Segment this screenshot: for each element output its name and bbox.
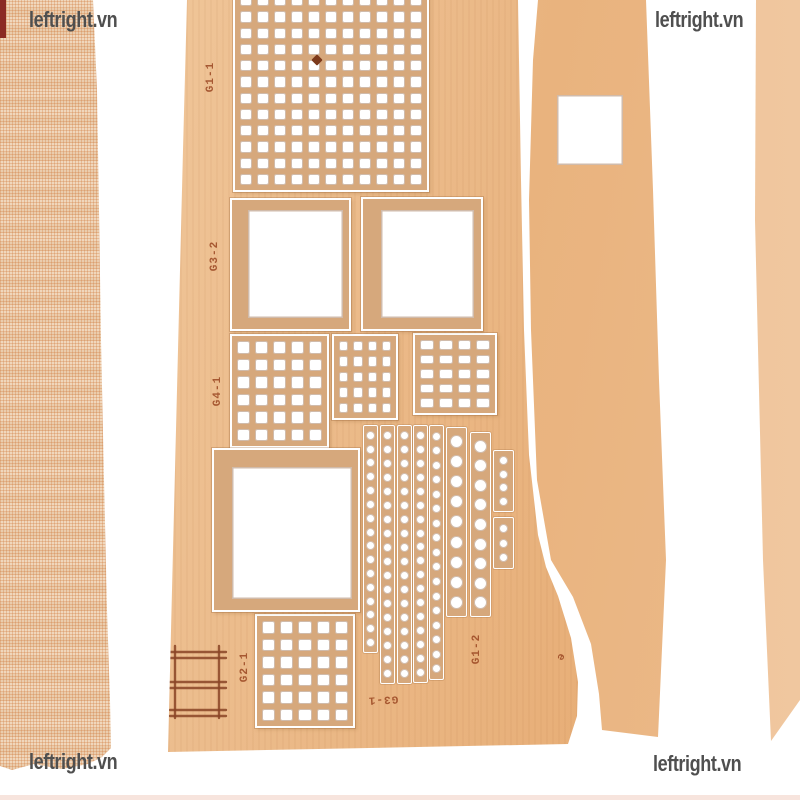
strip-hole bbox=[432, 446, 441, 455]
grating-hole bbox=[359, 93, 371, 104]
strip-hole bbox=[383, 669, 392, 678]
strip-hole bbox=[474, 538, 487, 551]
strip-hole bbox=[416, 473, 425, 482]
grating-hole bbox=[291, 141, 303, 152]
strip-hole bbox=[499, 497, 508, 506]
grating-hole bbox=[342, 125, 354, 136]
grating-hole bbox=[255, 429, 268, 442]
grating-hole bbox=[335, 709, 348, 722]
grating-hole bbox=[359, 109, 371, 120]
strip-hole bbox=[432, 548, 441, 557]
product-photo: G1-1G3-2G4-1G2-1G3-1G1-2e leftright.vn l… bbox=[0, 0, 800, 800]
grating-hole bbox=[274, 28, 286, 39]
grating-hole bbox=[376, 125, 388, 136]
grating-hole bbox=[335, 656, 348, 669]
engraved-label-g4-1: G4-1 bbox=[212, 376, 224, 406]
strip-hole bbox=[366, 445, 375, 454]
strip-hole bbox=[416, 515, 425, 524]
grating-hole bbox=[325, 125, 337, 136]
strip-hole bbox=[450, 455, 463, 468]
grating-hole bbox=[262, 691, 275, 704]
grating-hole bbox=[298, 656, 311, 669]
strip-hole bbox=[474, 596, 487, 609]
grating-hole bbox=[410, 76, 422, 87]
strip-hole bbox=[416, 431, 425, 440]
grating-hole bbox=[274, 76, 286, 87]
grating-hole bbox=[262, 709, 275, 722]
strip-hole bbox=[416, 445, 425, 454]
strip-hole bbox=[383, 557, 392, 566]
grating-hole bbox=[376, 28, 388, 39]
engraved-label-e: e bbox=[553, 651, 567, 663]
hole-strip-1 bbox=[363, 425, 378, 653]
grating-hole bbox=[255, 376, 268, 389]
strip-hole bbox=[450, 475, 463, 488]
grating-hole bbox=[291, 125, 303, 136]
grating-hole bbox=[262, 621, 275, 634]
strip-hole bbox=[366, 610, 375, 619]
grating-hole bbox=[353, 372, 362, 382]
grating-hole bbox=[308, 93, 320, 104]
grating-hole bbox=[291, 28, 303, 39]
grating-hole bbox=[240, 60, 252, 71]
main-parts-sheet: G1-1G3-2G4-1G2-1G3-1G1-2e bbox=[0, 0, 800, 800]
strip-hole bbox=[499, 539, 508, 548]
strip-hole bbox=[450, 435, 463, 448]
grating-hole bbox=[342, 44, 354, 55]
grating-hole bbox=[410, 93, 422, 104]
grating-hole bbox=[376, 109, 388, 120]
grating-hole bbox=[274, 109, 286, 120]
strip-hole bbox=[416, 626, 425, 635]
grating-hole bbox=[240, 125, 252, 136]
strip-hole bbox=[416, 487, 425, 496]
grating-hole bbox=[240, 0, 252, 6]
strip-hole bbox=[450, 576, 463, 589]
grating-hole bbox=[342, 60, 354, 71]
grating-hole bbox=[353, 387, 362, 397]
grating-hole bbox=[273, 394, 286, 407]
grating-hole bbox=[368, 403, 377, 413]
strip-hole bbox=[416, 556, 425, 565]
grating-hole bbox=[368, 372, 377, 382]
grating-hole bbox=[274, 11, 286, 22]
sheet-parts: G1-1G3-2G4-1G2-1G3-1G1-2e bbox=[0, 0, 800, 800]
grating-hole bbox=[439, 340, 453, 350]
strip-hole bbox=[366, 528, 375, 537]
grating-hole bbox=[291, 394, 304, 407]
strip-hole bbox=[416, 542, 425, 551]
grating-hole bbox=[255, 394, 268, 407]
strip-hole bbox=[432, 562, 441, 571]
strip-hole bbox=[383, 571, 392, 580]
grating-hole bbox=[308, 76, 320, 87]
grating-hole bbox=[257, 44, 269, 55]
grating-hole bbox=[393, 174, 405, 185]
strip-hole bbox=[474, 479, 487, 492]
strip-hole bbox=[416, 668, 425, 677]
grating-hole bbox=[382, 403, 391, 413]
grating-hole bbox=[308, 11, 320, 22]
grating-hole bbox=[393, 109, 405, 120]
grating-hole bbox=[393, 125, 405, 136]
grating-g2-1 bbox=[255, 614, 355, 728]
grating-hole bbox=[339, 387, 348, 397]
grating-hole bbox=[359, 60, 371, 71]
grating-hole bbox=[257, 174, 269, 185]
grating-hole bbox=[382, 387, 391, 397]
strip-hole bbox=[474, 498, 487, 511]
grating-hole bbox=[393, 60, 405, 71]
grating-hole bbox=[410, 109, 422, 120]
grating-hole bbox=[291, 93, 303, 104]
strip-hole bbox=[400, 543, 409, 552]
strip-hole bbox=[383, 641, 392, 650]
frame-large bbox=[212, 448, 360, 612]
grating-g4-1-a bbox=[230, 334, 329, 448]
bottom-edge-strip bbox=[0, 795, 800, 800]
strip-hole bbox=[400, 599, 409, 608]
grating-hole bbox=[273, 376, 286, 389]
strip-hole bbox=[432, 577, 441, 586]
grating-hole bbox=[255, 341, 268, 354]
grating-hole bbox=[393, 76, 405, 87]
grating-hole bbox=[393, 93, 405, 104]
strip-hole bbox=[400, 627, 409, 636]
grating-hole bbox=[376, 76, 388, 87]
grating-hole bbox=[325, 11, 337, 22]
strip-hole bbox=[400, 669, 409, 678]
strip-hole bbox=[474, 440, 487, 453]
engraved-label-g3-2: G3-2 bbox=[209, 241, 221, 271]
grating-hole bbox=[439, 355, 453, 365]
grating-hole bbox=[339, 356, 348, 366]
grating-hole bbox=[257, 125, 269, 136]
strip-hole bbox=[432, 490, 441, 499]
grating-hole bbox=[353, 341, 362, 351]
strip-hole bbox=[400, 431, 409, 440]
strip-hole bbox=[499, 483, 508, 492]
grating-hole bbox=[382, 356, 391, 366]
grating-hole bbox=[420, 369, 434, 379]
grating-hole bbox=[393, 28, 405, 39]
grating-hole bbox=[458, 398, 472, 408]
grating-hole bbox=[325, 0, 337, 6]
grating-hole bbox=[325, 93, 337, 104]
grating-hole bbox=[368, 356, 377, 366]
grating-hole bbox=[339, 341, 348, 351]
grating-hole bbox=[298, 621, 311, 634]
grating-hole bbox=[240, 174, 252, 185]
strip-hole bbox=[366, 486, 375, 495]
grating-hole bbox=[476, 398, 490, 408]
hole-strip-3 bbox=[397, 425, 412, 684]
grating-hole bbox=[291, 411, 304, 424]
grating-hole bbox=[291, 11, 303, 22]
strip-hole bbox=[416, 654, 425, 663]
grating-hole bbox=[410, 60, 422, 71]
strip-hole bbox=[400, 445, 409, 454]
grating-hole bbox=[342, 28, 354, 39]
grating-hole bbox=[376, 141, 388, 152]
grating-hole bbox=[439, 369, 453, 379]
grating-hole bbox=[393, 0, 405, 6]
grating-hole bbox=[237, 394, 250, 407]
strip-hole bbox=[474, 459, 487, 472]
grating-hole bbox=[274, 158, 286, 169]
grating-hole bbox=[376, 93, 388, 104]
grating-hole bbox=[376, 44, 388, 55]
grating-hole bbox=[257, 28, 269, 39]
strip-hole bbox=[450, 556, 463, 569]
strip-hole bbox=[400, 529, 409, 538]
hole-strip-7 bbox=[470, 432, 491, 617]
strip-hole bbox=[416, 640, 425, 649]
grating-hole bbox=[458, 369, 472, 379]
grating-hole bbox=[309, 341, 322, 354]
grating-hole bbox=[298, 691, 311, 704]
strip-hole bbox=[474, 557, 487, 570]
grating-hole bbox=[273, 429, 286, 442]
grating-hole bbox=[280, 639, 293, 652]
hole-strip-9 bbox=[493, 517, 514, 569]
strip-hole bbox=[366, 541, 375, 550]
grating-hole bbox=[420, 398, 434, 408]
grating-hole bbox=[342, 11, 354, 22]
grating-hole bbox=[339, 372, 348, 382]
strip-hole bbox=[383, 431, 392, 440]
grating-hole bbox=[298, 639, 311, 652]
frame-large-hole bbox=[232, 467, 352, 599]
grating-hole bbox=[273, 341, 286, 354]
grating-hole bbox=[291, 174, 303, 185]
grating-hole bbox=[308, 28, 320, 39]
strip-hole bbox=[432, 650, 441, 659]
grating-hole bbox=[291, 44, 303, 55]
strip-hole bbox=[499, 553, 508, 562]
grating-hole bbox=[308, 109, 320, 120]
strip-hole bbox=[432, 635, 441, 644]
grating-hole bbox=[257, 0, 269, 6]
grating-hole bbox=[342, 174, 354, 185]
grating-hole bbox=[309, 429, 322, 442]
grating-hole bbox=[335, 674, 348, 687]
watermark-bottom-right: leftright.vn bbox=[653, 751, 741, 777]
strip-hole bbox=[366, 597, 375, 606]
frame-g3-2-left bbox=[230, 198, 351, 331]
strip-hole bbox=[400, 515, 409, 524]
grating-hole bbox=[280, 674, 293, 687]
strip-hole bbox=[400, 459, 409, 468]
grating-hole bbox=[237, 341, 250, 354]
grating-hole bbox=[325, 174, 337, 185]
strip-hole bbox=[474, 577, 487, 590]
grating-hole bbox=[308, 0, 320, 6]
hole-strip-6 bbox=[446, 427, 467, 617]
grating-hole bbox=[353, 356, 362, 366]
strip-hole bbox=[366, 500, 375, 509]
strip-hole bbox=[474, 518, 487, 531]
grating-hole bbox=[257, 158, 269, 169]
grating-hole bbox=[257, 76, 269, 87]
engraved-label-g3-1: G3-1 bbox=[368, 692, 399, 706]
grating-hole bbox=[410, 141, 422, 152]
grating-hole bbox=[317, 709, 330, 722]
grating-hole bbox=[439, 398, 453, 408]
grating-hole bbox=[410, 11, 422, 22]
grating-hole bbox=[274, 93, 286, 104]
grating-hole bbox=[262, 639, 275, 652]
grating-hole bbox=[262, 656, 275, 669]
grating-hole bbox=[325, 60, 337, 71]
grating-hole bbox=[353, 403, 362, 413]
grating-hole bbox=[255, 359, 268, 372]
grating-hole bbox=[237, 359, 250, 372]
grating-hole bbox=[298, 674, 311, 687]
grating-hole bbox=[291, 0, 303, 6]
grating-hole bbox=[342, 93, 354, 104]
grating-hole bbox=[342, 158, 354, 169]
grating-hole bbox=[376, 158, 388, 169]
strip-hole bbox=[383, 543, 392, 552]
grating-hole bbox=[257, 141, 269, 152]
strip-hole bbox=[383, 585, 392, 594]
strip-hole bbox=[450, 536, 463, 549]
grating-hole bbox=[458, 340, 472, 350]
strip-hole bbox=[450, 596, 463, 609]
grating-hole bbox=[308, 141, 320, 152]
grating-hole bbox=[335, 639, 348, 652]
strip-hole bbox=[366, 624, 375, 633]
grating-hole bbox=[382, 341, 391, 351]
grating-hole bbox=[240, 76, 252, 87]
strip-hole bbox=[432, 533, 441, 542]
grating-hole bbox=[359, 141, 371, 152]
grating-hole bbox=[368, 387, 377, 397]
grating-hole bbox=[359, 76, 371, 87]
grating-hole bbox=[240, 109, 252, 120]
grating-hole bbox=[335, 621, 348, 634]
grating-hole bbox=[359, 174, 371, 185]
grating-hole bbox=[458, 384, 472, 394]
strip-hole bbox=[416, 612, 425, 621]
strip-hole bbox=[432, 504, 441, 513]
strip-hole bbox=[416, 584, 425, 593]
grating-hole bbox=[291, 429, 304, 442]
strip-hole bbox=[383, 487, 392, 496]
hole-strip-8 bbox=[493, 450, 514, 512]
strip-hole bbox=[400, 571, 409, 580]
grating-hole bbox=[325, 141, 337, 152]
strip-hole bbox=[432, 606, 441, 615]
strip-hole bbox=[450, 495, 463, 508]
grating-hole bbox=[291, 60, 303, 71]
strip-hole bbox=[499, 456, 508, 465]
grating-hole bbox=[317, 639, 330, 652]
grating-hole bbox=[342, 109, 354, 120]
grating-hole bbox=[309, 359, 322, 372]
grating-hole bbox=[410, 174, 422, 185]
grating-hole bbox=[342, 0, 354, 6]
grating-hole bbox=[476, 355, 490, 365]
frame-g3-2-left-hole bbox=[248, 210, 343, 318]
grating-hole bbox=[291, 158, 303, 169]
hole-strip-5 bbox=[429, 425, 444, 680]
grating-hole bbox=[420, 340, 434, 350]
grating-hole bbox=[237, 411, 250, 424]
grating-hole bbox=[335, 691, 348, 704]
strip-hole bbox=[366, 638, 375, 647]
strip-hole bbox=[432, 664, 441, 673]
grating-hole bbox=[342, 141, 354, 152]
frame-g3-2-right bbox=[361, 197, 483, 331]
grating-hole bbox=[280, 691, 293, 704]
grating-hole bbox=[309, 394, 322, 407]
grating-hole bbox=[359, 28, 371, 39]
grating-hole bbox=[359, 158, 371, 169]
grating-hole bbox=[317, 656, 330, 669]
strip-hole bbox=[366, 583, 375, 592]
grating-hole bbox=[274, 44, 286, 55]
grating-hole bbox=[280, 621, 293, 634]
grating-hole bbox=[393, 158, 405, 169]
grating-hole bbox=[237, 376, 250, 389]
grating-hole bbox=[317, 674, 330, 687]
grating-hole bbox=[255, 411, 268, 424]
grating-hole bbox=[240, 28, 252, 39]
strip-hole bbox=[400, 487, 409, 496]
strip-hole bbox=[416, 570, 425, 579]
engraved-label-g1-1: G1-1 bbox=[205, 62, 217, 92]
watermark-bottom-left: leftright.vn bbox=[29, 749, 117, 775]
grating-hole bbox=[237, 429, 250, 442]
grating-hole bbox=[476, 384, 490, 394]
strip-hole bbox=[400, 655, 409, 664]
strip-hole bbox=[366, 431, 375, 440]
grating-hole bbox=[262, 674, 275, 687]
grating-hole bbox=[325, 109, 337, 120]
grating-hole bbox=[325, 76, 337, 87]
grating-hole bbox=[359, 11, 371, 22]
grating-hole bbox=[240, 93, 252, 104]
grating-hole bbox=[410, 44, 422, 55]
grating-hole bbox=[359, 44, 371, 55]
grating-hole bbox=[280, 656, 293, 669]
watermark-top-right: leftright.vn bbox=[655, 7, 743, 33]
grating-hole bbox=[309, 411, 322, 424]
strip-hole bbox=[400, 641, 409, 650]
strip-hole bbox=[432, 519, 441, 528]
engraved-label-g2-1: G2-1 bbox=[239, 652, 251, 682]
strip-hole bbox=[400, 557, 409, 566]
grating-g4-1-c bbox=[413, 333, 497, 415]
grating-hole bbox=[274, 125, 286, 136]
grating-hole bbox=[376, 0, 388, 6]
strip-hole bbox=[366, 458, 375, 467]
strip-hole bbox=[432, 475, 441, 484]
grating-hole bbox=[240, 158, 252, 169]
strip-hole bbox=[400, 613, 409, 622]
strip-hole bbox=[366, 555, 375, 564]
grating-hole bbox=[257, 60, 269, 71]
grating-hole bbox=[240, 11, 252, 22]
strip-hole bbox=[499, 524, 508, 533]
grating-hole bbox=[382, 372, 391, 382]
strip-hole bbox=[400, 585, 409, 594]
grating-hole bbox=[476, 369, 490, 379]
strip-hole bbox=[416, 501, 425, 510]
grating-hole bbox=[410, 125, 422, 136]
